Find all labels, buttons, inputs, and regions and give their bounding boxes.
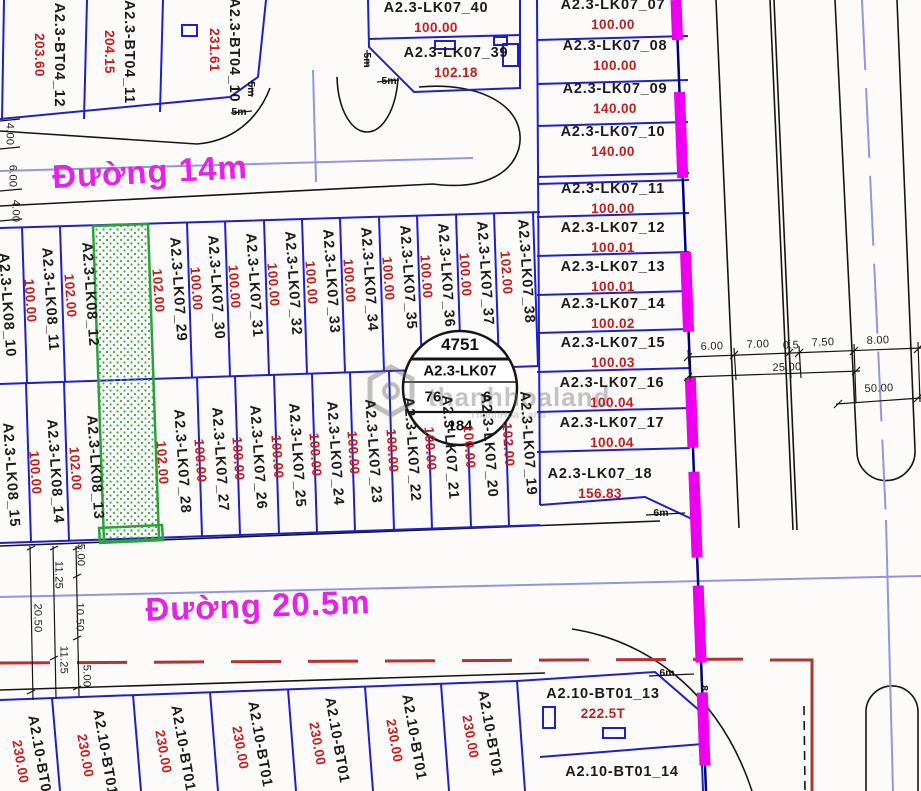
plot-area: 102.18 bbox=[404, 64, 509, 82]
plot-label: A2.3-LK07_14100.02 bbox=[561, 295, 666, 333]
dimension-value: 6.00 bbox=[700, 340, 723, 353]
plot-area: 100.01 bbox=[561, 278, 666, 296]
plot-label: A2.3-BT04_12203.60 bbox=[30, 3, 68, 108]
plot-area: 204.15 bbox=[100, 0, 118, 104]
dimension-value: 25.00 bbox=[772, 361, 801, 374]
note-value: 8 bbox=[698, 685, 710, 691]
plot-label: A2.3-LK07_38102.00 bbox=[494, 218, 539, 325]
plot-id: A2.3-LK07_15 bbox=[561, 334, 666, 354]
note-label: 8 bbox=[697, 685, 711, 691]
plot-label: A2.3-LK07_40100.00 bbox=[384, 0, 489, 37]
plot-label: A2.3-LK07_13100.01 bbox=[561, 258, 666, 296]
plot-label: A2.3-LK08_14100.00 bbox=[23, 418, 68, 525]
plot-area: 100.00 bbox=[563, 57, 668, 75]
plot-label: A2.3-LK07_31100.00 bbox=[222, 232, 267, 339]
plot-area: 100.04 bbox=[560, 434, 665, 452]
dimension-value: 50.00 bbox=[864, 382, 893, 395]
plot-id: A2.3-LK07_18 bbox=[548, 465, 653, 485]
plot-area: 100.04 bbox=[560, 394, 665, 412]
dimension-label: 20.50 bbox=[30, 603, 45, 632]
dimension-label: 10.50 bbox=[72, 602, 87, 631]
plot-area: 100.02 bbox=[561, 315, 666, 333]
plot-id: A2.3-LK07_39 bbox=[404, 44, 509, 64]
plot-label: A2.3-LK07_18156.83 bbox=[548, 465, 653, 503]
plot-id: A2.3-BT04_10 bbox=[223, 0, 243, 102]
dimension-value: 7.00 bbox=[746, 338, 769, 351]
plot-area: 156.83 bbox=[548, 485, 653, 503]
note-value: 6m bbox=[653, 507, 668, 519]
plot-label: A2.3-LK07_37100.00 bbox=[453, 220, 498, 327]
plot-label: A2.3-LK07_36100.00 bbox=[414, 222, 459, 329]
plot-label: A2.3-LK07_15100.03 bbox=[561, 334, 666, 372]
plot-area: 203.60 bbox=[30, 3, 48, 108]
dimension-value: 0.5 bbox=[783, 339, 800, 352]
dimension-value: 20.50 bbox=[31, 603, 43, 632]
plot-id: A2.3-LK07_11 bbox=[561, 180, 665, 200]
plot-id: A2.3-LK07_16 bbox=[560, 374, 665, 394]
dimension-label: 11.25 bbox=[51, 561, 66, 589]
plot-id: A2.3-LK07_07 bbox=[561, 0, 666, 16]
dimension-label: 6.00 bbox=[700, 339, 723, 355]
dimension-label: 7.00 bbox=[746, 337, 769, 353]
plot-id: A2.3-LK07_08 bbox=[563, 37, 668, 57]
plot-label: A2.3-LK07_34100.00 bbox=[337, 226, 382, 333]
dimension-value: 4.00 bbox=[9, 200, 21, 223]
dimension-label: 5.00 bbox=[79, 665, 94, 688]
dimension-value: 4.00 bbox=[3, 123, 15, 146]
plot-label: A2.10-BT01_13222.5T bbox=[546, 685, 660, 723]
plot-id: A2.10-BT01_14 bbox=[565, 763, 679, 783]
dimension-value: 10.50 bbox=[73, 602, 85, 631]
plot-id: A2.3-LK07_14 bbox=[561, 295, 666, 315]
plot-id: A2.3-BT04_12 bbox=[48, 3, 68, 108]
plot-area: 231.61 bbox=[205, 0, 223, 102]
plot-area: 140.00 bbox=[561, 143, 666, 161]
dimension-label: 25.00 bbox=[772, 360, 802, 376]
dimension-label: 11.25 bbox=[56, 646, 71, 674]
dimension-value: 7.50 bbox=[811, 336, 834, 349]
plot-id: A2.3-LK07_10 bbox=[561, 123, 666, 143]
note-label: 6m bbox=[659, 666, 674, 680]
dimension-label: 5.00 bbox=[73, 544, 88, 567]
plot-label: A2.3-LK07_17100.04 bbox=[560, 414, 665, 452]
plot-label: A2.3-LK08_12102.00 bbox=[58, 241, 103, 348]
dimension-label: 7.50 bbox=[811, 335, 834, 351]
note-label: 5m bbox=[231, 105, 246, 119]
plot-id: A2.3-LK07_17 bbox=[560, 414, 665, 434]
note-label: 6m bbox=[653, 506, 668, 520]
boundary-dashes bbox=[676, 0, 705, 766]
plot-id: A2.10-BT01_13 bbox=[546, 685, 660, 705]
street-label-20-5m: Đường 20.5m bbox=[145, 583, 371, 629]
plot-area: 222.5T bbox=[546, 705, 660, 723]
plot-label: A2.3-BT04_10231.61 bbox=[205, 0, 243, 102]
note-value: 5m bbox=[361, 52, 373, 67]
cadastral-map: Đường 14m Đường 20.5m 4751 A2.3-LK07 76 … bbox=[0, 0, 921, 791]
plot-label: A2.3-LK07_08100.00 bbox=[563, 37, 668, 75]
note-value: 6m bbox=[659, 667, 674, 679]
plot-label: A2.3-LK07_19102.00 bbox=[496, 390, 541, 497]
plot-label: A2.3-LK07_21100.00 bbox=[418, 394, 463, 501]
plot-area: 100.03 bbox=[561, 354, 666, 372]
dimension-value: 5.00 bbox=[80, 665, 92, 688]
note-value: 5m bbox=[245, 81, 257, 96]
stamp-number: 4751 bbox=[441, 335, 479, 355]
plot-id: A2.3-LK07_40 bbox=[384, 0, 489, 19]
plot-label: A2.3-LK07_07100.00 bbox=[561, 0, 666, 34]
plot-id: A2.3-LK07_12 bbox=[561, 219, 666, 239]
dimension-value: 8.00 bbox=[866, 334, 889, 347]
dimension-value: 11.25 bbox=[57, 646, 69, 674]
plot-label: A2.3-LK07_23100.00 bbox=[341, 398, 386, 505]
plot-area: 100.00 bbox=[561, 16, 666, 34]
note-value: 5m bbox=[381, 75, 396, 87]
plot-label: A2.3-LK08_11100.00 bbox=[18, 247, 63, 353]
dimension-label: 50.00 bbox=[864, 381, 894, 397]
dimension-label: 6.00 bbox=[5, 165, 20, 188]
plot-label: A2.3-LK07_39102.18 bbox=[404, 44, 509, 82]
plot-label: A2.3-LK07_20100.00 bbox=[457, 392, 502, 499]
plot-id: A2.3-LK07_09 bbox=[563, 80, 668, 100]
plot-area: 140.00 bbox=[563, 100, 668, 118]
plot-id: A2.3-BT04_11 bbox=[118, 0, 138, 104]
dimension-label: 4.00 bbox=[8, 200, 23, 223]
note-value: 5m bbox=[231, 106, 246, 118]
dimension-value: 5.00 bbox=[74, 544, 86, 567]
plot-label: A2.3-LK07_16100.04 bbox=[560, 374, 665, 412]
plot-label: A2.3-LK07_09140.00 bbox=[563, 80, 668, 118]
note-label: 5m bbox=[360, 52, 374, 67]
dimension-label: 8.00 bbox=[866, 333, 889, 349]
plot-area: 100.00 bbox=[384, 19, 489, 37]
plot-label: A2.10-BT01_14 bbox=[565, 763, 679, 783]
plot-area: 100.01 bbox=[561, 239, 666, 257]
stamp-block-name: A2.3-LK07 bbox=[423, 363, 496, 380]
dimension-label: 4.00 bbox=[2, 123, 17, 146]
plot-label: A2.3-LK08_13102.00 bbox=[63, 414, 108, 521]
plot-id: A2.3-LK07_13 bbox=[561, 258, 666, 278]
dimension-label: 0.5 bbox=[783, 338, 800, 353]
plot-label: A2.3-LK07_10140.00 bbox=[561, 123, 666, 161]
dimension-value: 6.00 bbox=[6, 165, 18, 188]
plot-label: A2.3-BT04_11204.15 bbox=[100, 0, 138, 104]
plot-label: A2.3-LK07_26100.00 bbox=[226, 404, 271, 511]
plot-label: A2.3-LK07_12100.01 bbox=[561, 219, 666, 257]
note-label: 5m bbox=[244, 81, 258, 96]
plot-label: A2.3-LK07_11100.00 bbox=[561, 180, 665, 218]
plot-area: 100.00 bbox=[561, 200, 665, 218]
note-label: 5m bbox=[381, 74, 396, 88]
dimension-value: 11.25 bbox=[52, 561, 64, 589]
